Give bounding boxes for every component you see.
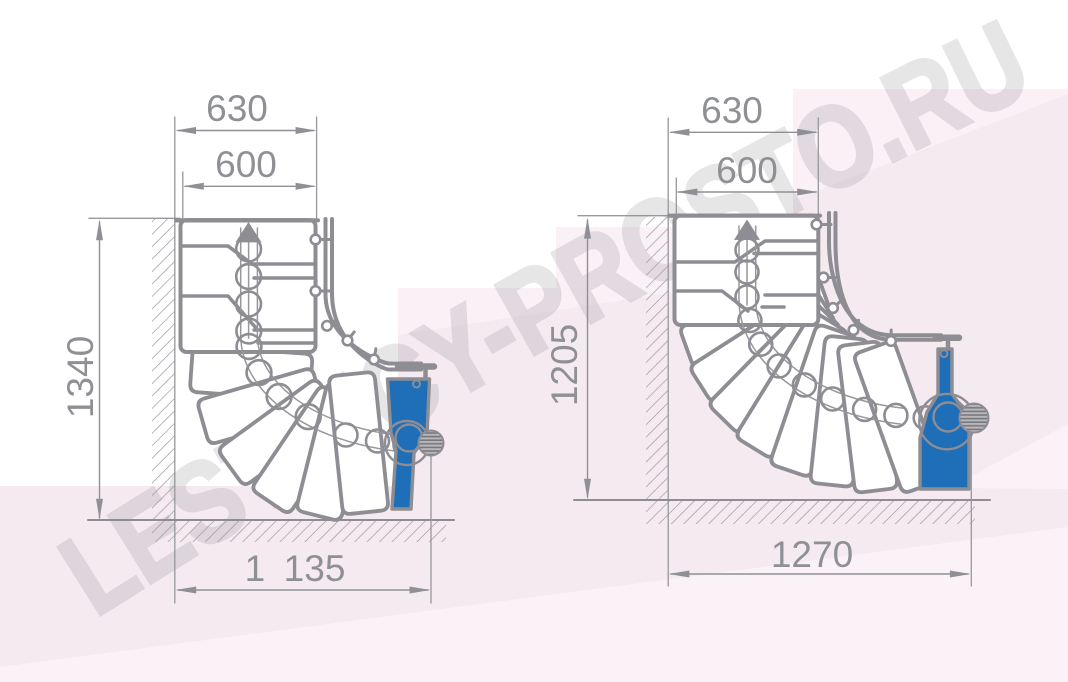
- svg-text:1 135: 1 135: [245, 548, 346, 589]
- svg-text:1340: 1340: [60, 336, 101, 418]
- svg-text:1205: 1205: [544, 324, 585, 406]
- svg-text:600: 600: [716, 150, 778, 191]
- svg-text:630: 630: [206, 88, 268, 129]
- svg-text:600: 600: [215, 144, 277, 185]
- svg-text:630: 630: [701, 90, 763, 131]
- svg-text:1270: 1270: [771, 534, 853, 575]
